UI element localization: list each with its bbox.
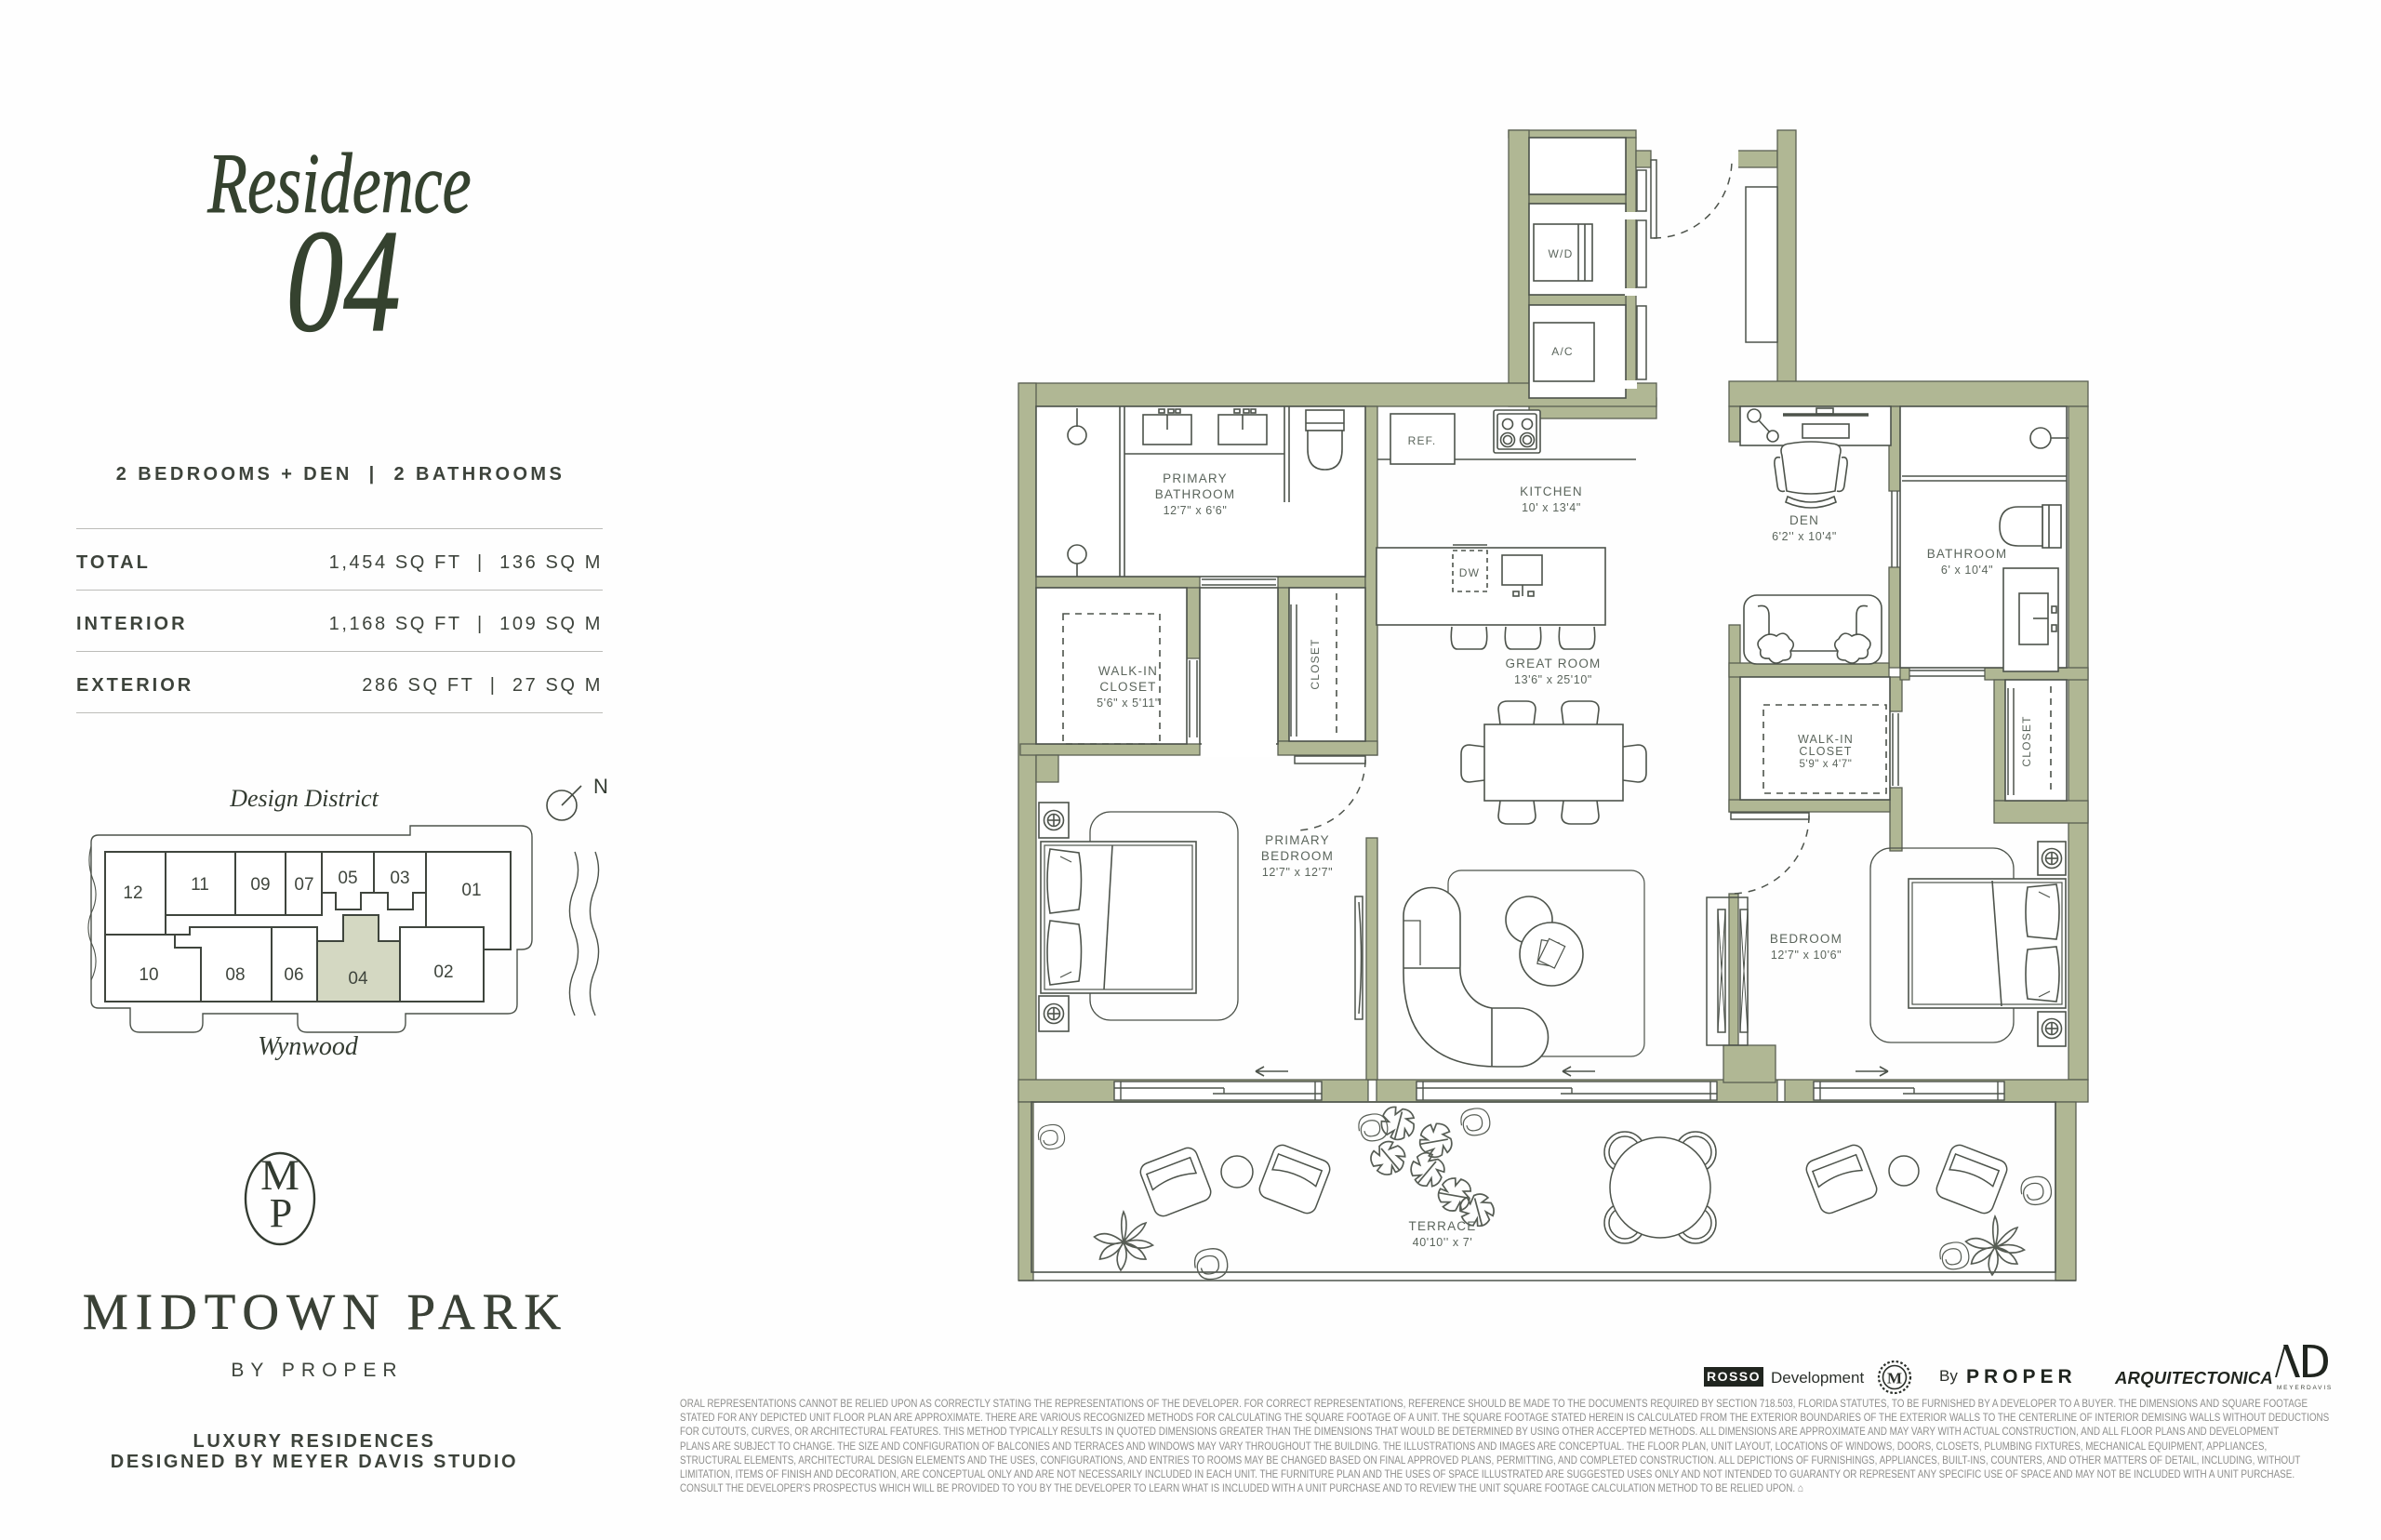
svg-text:WALK-IN: WALK-IN bbox=[1798, 733, 1854, 746]
svg-text:CLOSET: CLOSET bbox=[2020, 715, 2033, 766]
svg-text:08: 08 bbox=[225, 965, 245, 985]
svg-text:CLOSET: CLOSET bbox=[1799, 745, 1852, 758]
svg-text:13'6" x 25'10": 13'6" x 25'10" bbox=[1514, 673, 1592, 686]
svg-text:BATHROOM: BATHROOM bbox=[1155, 487, 1236, 501]
svg-text:KITCHEN: KITCHEN bbox=[1520, 485, 1583, 498]
svg-text:REF.: REF. bbox=[1408, 434, 1437, 447]
svg-text:MEYERDAVIS: MEYERDAVIS bbox=[2277, 1385, 2333, 1391]
svg-text:DW: DW bbox=[1459, 566, 1480, 579]
svg-text:6'2'' x 10'4": 6'2'' x 10'4" bbox=[1772, 530, 1837, 543]
svg-text:12'7" x 10'6": 12'7" x 10'6" bbox=[1771, 949, 1842, 962]
svg-text:09: 09 bbox=[250, 875, 270, 895]
svg-text:5'6" x 5'11": 5'6" x 5'11" bbox=[1097, 697, 1160, 710]
svg-text:06: 06 bbox=[284, 965, 303, 985]
svg-text:A/C: A/C bbox=[1551, 345, 1574, 358]
svg-text:02: 02 bbox=[433, 962, 453, 982]
svg-text:WALK-IN: WALK-IN bbox=[1098, 664, 1158, 678]
svg-text:40'10'' x 7': 40'10'' x 7' bbox=[1413, 1236, 1473, 1249]
svg-text:BEDROOM: BEDROOM bbox=[1261, 849, 1334, 863]
svg-text:12'7" x 12'7": 12'7" x 12'7" bbox=[1262, 866, 1333, 879]
svg-text:07: 07 bbox=[294, 875, 313, 895]
svg-text:12'7" x 6'6": 12'7" x 6'6" bbox=[1164, 504, 1228, 517]
svg-text:CLOSET: CLOSET bbox=[1099, 680, 1156, 694]
svg-text:Design District: Design District bbox=[229, 785, 379, 812]
svg-text:11: 11 bbox=[191, 875, 209, 895]
svg-text:BATHROOM: BATHROOM bbox=[1927, 547, 2008, 561]
svg-text:03: 03 bbox=[390, 869, 409, 888]
svg-text:12: 12 bbox=[123, 883, 142, 903]
svg-text:05: 05 bbox=[338, 869, 357, 888]
svg-text:01: 01 bbox=[461, 881, 481, 900]
svg-text:10' x 13'4": 10' x 13'4" bbox=[1522, 501, 1581, 514]
svg-text:CLOSET: CLOSET bbox=[1309, 638, 1322, 689]
svg-text:PRIMARY: PRIMARY bbox=[1163, 471, 1228, 485]
svg-text:W/D: W/D bbox=[1549, 247, 1574, 260]
svg-text:04: 04 bbox=[348, 969, 368, 989]
svg-text:DEN: DEN bbox=[1789, 513, 1819, 527]
svg-text:M: M bbox=[1887, 1370, 1902, 1387]
svg-text:BEDROOM: BEDROOM bbox=[1770, 932, 1842, 946]
svg-text:P: P bbox=[270, 1190, 292, 1236]
svg-text:N: N bbox=[593, 775, 608, 798]
svg-text:PRIMARY: PRIMARY bbox=[1265, 833, 1330, 847]
svg-text:TERRACE: TERRACE bbox=[1409, 1219, 1477, 1233]
svg-text:6' x 10'4": 6' x 10'4" bbox=[1941, 564, 1993, 577]
svg-text:GREAT ROOM: GREAT ROOM bbox=[1505, 657, 1601, 670]
svg-text:Wynwood: Wynwood bbox=[258, 1032, 359, 1061]
svg-text:10: 10 bbox=[139, 965, 158, 985]
svg-text:5'9" x 4'7": 5'9" x 4'7" bbox=[1800, 759, 1853, 770]
